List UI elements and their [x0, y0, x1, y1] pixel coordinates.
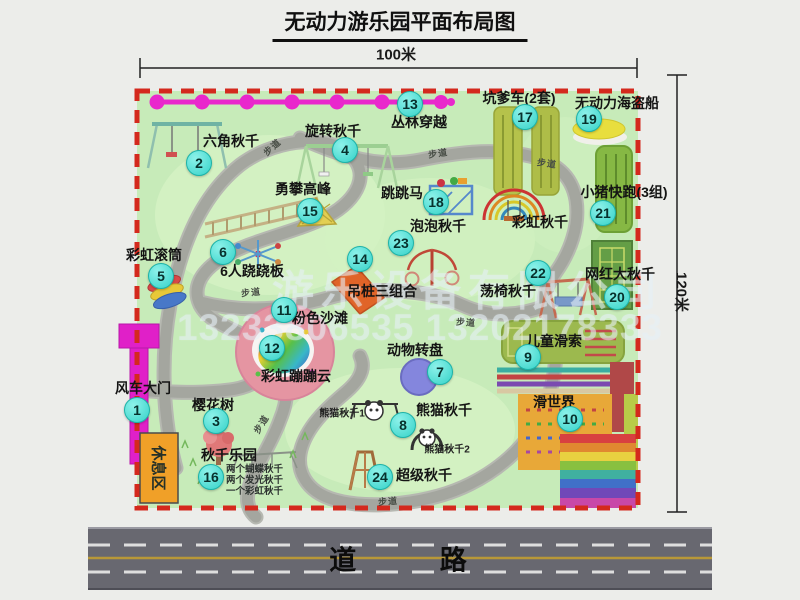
attraction-badge-9: 9	[515, 344, 541, 370]
swing-park-detail-2: 一个彩虹秋千	[226, 483, 283, 497]
walkway-label-4: 步道	[456, 315, 477, 329]
walkway-label-0: 步道	[260, 135, 284, 158]
attraction-badge-20: 20	[604, 284, 630, 310]
attraction-badge-13: 13	[397, 91, 423, 117]
extra-label-2: 熊猫秋千2	[424, 441, 470, 456]
attraction-badge-24: 24	[367, 464, 393, 490]
walkway-label-3: 步道	[240, 284, 261, 299]
rest-area-label: 休息区	[149, 445, 170, 490]
attraction-label-20: 网红大秋千	[585, 264, 655, 284]
attraction-badge-7: 7	[427, 359, 453, 385]
extra-label-1: 熊猫秋千1	[319, 405, 365, 420]
attraction-label-18: 跳跳马	[381, 183, 423, 203]
attraction-label-12: 彩虹蹦蹦云	[261, 366, 331, 386]
walkway-label-5: 步道	[378, 494, 399, 508]
attraction-badge-14: 14	[347, 246, 373, 272]
attraction-badge-22: 22	[525, 260, 551, 286]
attraction-label-11: 粉色沙滩	[292, 308, 348, 328]
walkway-label-6: 步道	[250, 412, 272, 436]
attraction-label-2: 六角秋千	[203, 131, 259, 151]
attraction-label-5: 彩虹滚筒	[126, 245, 182, 265]
attraction-label-1: 风车大门	[115, 378, 171, 398]
attraction-label-24: 超级秋千	[396, 465, 452, 485]
attraction-label-23: 泡泡秋千	[410, 216, 466, 236]
walkway-label-1: 步道	[427, 145, 449, 161]
attraction-label-22: 荡椅秋千	[480, 281, 536, 301]
attraction-label-8: 熊猫秋千	[416, 400, 472, 420]
dimension-width-label: 100米	[376, 44, 416, 65]
attraction-badge-23: 23	[388, 230, 414, 256]
attraction-label-7: 动物转盘	[387, 340, 443, 360]
attraction-badge-17: 17	[512, 104, 538, 130]
attraction-badge-8: 8	[390, 412, 416, 438]
attraction-label-6: 6人跷跷板	[220, 261, 284, 281]
screenshot-root: 无动力游乐园平面布局图	[0, 0, 800, 600]
attraction-badge-18: 18	[423, 189, 449, 215]
road-label: 道 路	[291, 539, 505, 578]
attraction-badge-12: 12	[259, 335, 285, 361]
map-overlay: 100米 120米 游乐设备有限公司 13233806535 132021783…	[0, 0, 800, 600]
attraction-label-14: 吊桩三组合	[347, 281, 417, 301]
attraction-badge-1: 1	[124, 397, 150, 423]
attraction-badge-11: 11	[271, 297, 297, 323]
attraction-badge-3: 3	[203, 408, 229, 434]
extra-label-0: 彩虹秋千	[512, 212, 568, 232]
attraction-badge-2: 2	[186, 150, 212, 176]
attraction-badge-5: 5	[148, 263, 174, 289]
attraction-badge-15: 15	[297, 198, 323, 224]
attraction-badge-21: 21	[590, 200, 616, 226]
attraction-badge-16: 16	[198, 464, 224, 490]
attraction-badge-19: 19	[576, 106, 602, 132]
walkway-label-2: 步道	[536, 155, 558, 171]
attraction-label-4: 旋转秋千	[305, 121, 361, 141]
attraction-label-15: 勇攀高峰	[275, 179, 331, 199]
attraction-badge-10: 10	[557, 406, 583, 432]
attraction-badge-4: 4	[332, 137, 358, 163]
attraction-badge-6: 6	[210, 239, 236, 265]
attraction-label-13: 丛林穿越	[391, 112, 447, 132]
dimension-height-label: 120米	[672, 272, 693, 312]
attraction-label-21: 小猪快跑(3组)	[580, 182, 667, 202]
